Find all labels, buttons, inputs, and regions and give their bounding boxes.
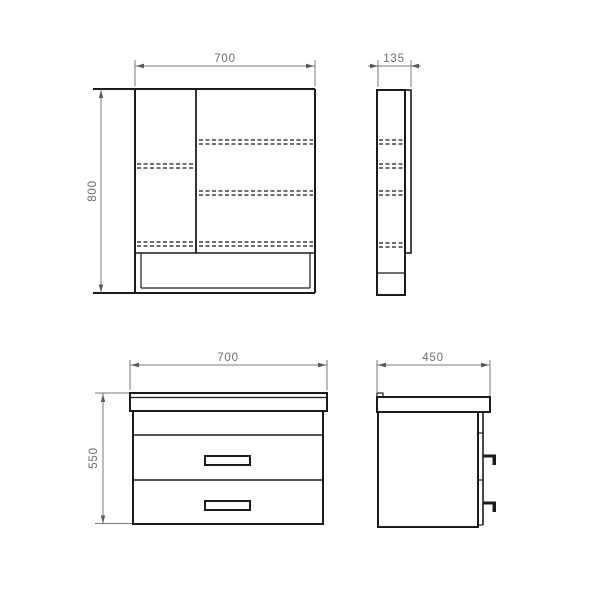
dimension-label-mirror-height: 800	[87, 180, 99, 202]
cabinet-side-body	[377, 90, 405, 295]
hidden-shelf-lines	[137, 140, 313, 246]
dimension-mirror-depth: 135	[368, 53, 421, 87]
dimension-label-vanity-width: 700	[217, 352, 239, 364]
drawer-handle-top	[205, 456, 250, 465]
handle-profile-bottom	[483, 502, 496, 513]
vanity-side-body	[378, 412, 478, 527]
vanity-side-view	[377, 393, 496, 527]
technical-drawing: 700 800 135 700 550	[0, 0, 600, 600]
handle-profile-top	[483, 455, 496, 466]
dimension-label-mirror-width: 700	[214, 53, 236, 65]
dimension-mirror-height: 800	[87, 90, 103, 293]
dimension-vanity-height: 550	[88, 393, 132, 524]
drawing-canvas: 700 800 135 700 550	[0, 0, 600, 600]
dimension-label-mirror-depth: 135	[383, 53, 405, 65]
dimension-label-vanity-depth: 450	[422, 352, 444, 364]
mirror-cabinet-front-view	[93, 89, 315, 293]
washbasin-countertop	[130, 393, 327, 411]
countertop-side	[377, 397, 490, 412]
dimension-mirror-width: 700	[135, 53, 315, 86]
mirror-cabinet-side-view	[377, 90, 411, 295]
hidden-shelf-lines-side	[379, 140, 403, 247]
dimension-vanity-depth: 450	[377, 352, 490, 396]
drawer-handle-bottom	[205, 501, 250, 510]
dimension-vanity-width: 700	[130, 352, 327, 390]
dimension-label-vanity-height: 550	[88, 447, 100, 469]
open-niche	[141, 253, 310, 288]
vanity-front-view	[130, 393, 327, 524]
